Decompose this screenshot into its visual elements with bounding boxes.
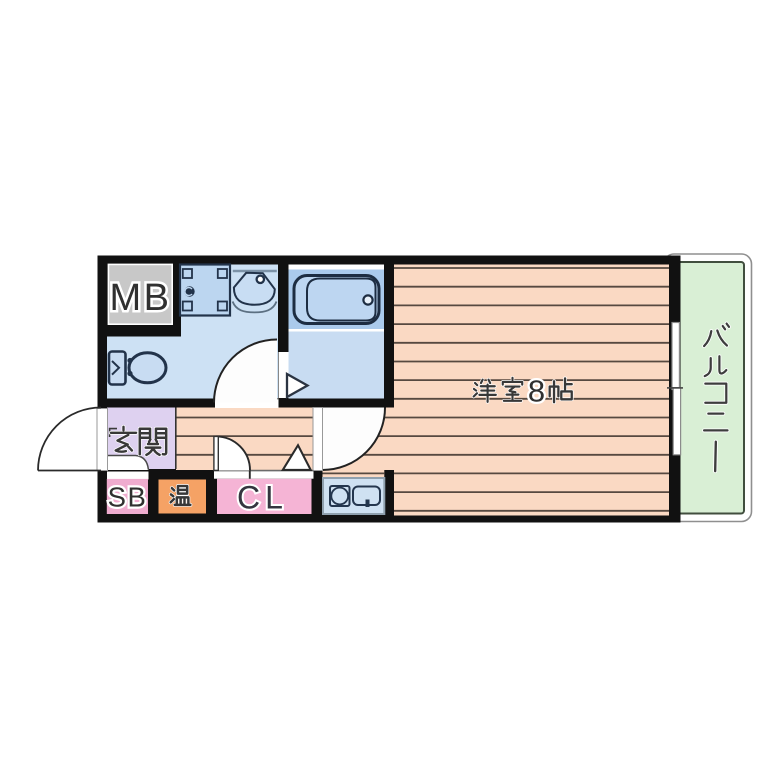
- svg-text:SB: SB: [108, 481, 148, 512]
- svg-text:8: 8: [528, 374, 545, 409]
- svg-text:MB: MB: [110, 277, 172, 319]
- svg-text:CL: CL: [237, 480, 288, 516]
